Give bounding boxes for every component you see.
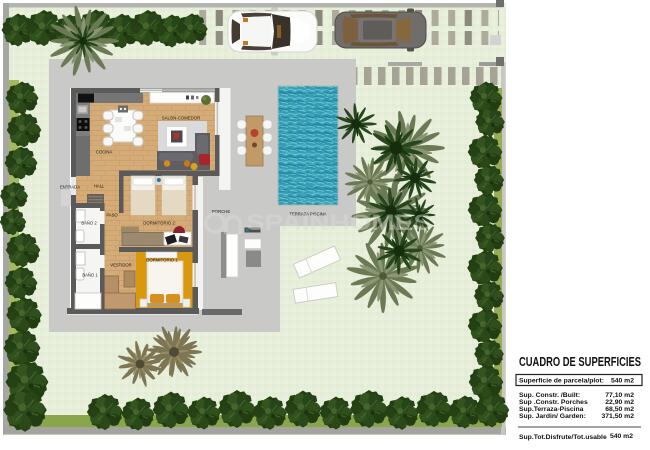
svg-text:VESTIDOR: VESTIDOR [110,263,131,268]
svg-text:540 m2: 540 m2 [610,433,633,440]
svg-text:Sup. Jardin/ Garden:: Sup. Jardin/ Garden: [519,413,586,420]
svg-text:Sup.Tot.Disfrute/Tot.usable: Sup.Tot.Disfrute/Tot.usable [519,434,607,441]
svg-text:HALL: HALL [94,184,105,189]
svg-text:ENTRADA: ENTRADA [60,185,80,190]
svg-text:371,50 m2: 371,50 m2 [601,413,634,420]
svg-text:SALON-COMEDOR: SALON-COMEDOR [162,116,200,121]
svg-text:DORMITORIO 1: DORMITORIO 1 [146,258,178,263]
svg-text:COCINA: COCINA [96,150,113,155]
svg-text:PASO: PASO [106,213,118,218]
svg-text:540 m2: 540 m2 [611,378,634,385]
svg-text:Sup. Constr. /Built:: Sup. Constr. /Built: [519,392,580,399]
svg-text:Sup .Constr. Porches: Sup .Constr. Porches [519,399,588,406]
svg-text:Superficie de parcela/plot:: Superficie de parcela/plot: [519,378,604,385]
svg-text:SPAINHOMES: SPAINHOMES [246,210,432,235]
svg-text:22,90 m2: 22,90 m2 [605,399,634,406]
svg-text:68,50 m2: 68,50 m2 [605,406,634,413]
svg-text:77,10 m2: 77,10 m2 [605,392,634,399]
svg-text:BAÑO 1: BAÑO 1 [82,273,98,278]
svg-text:CUADRO DE SUPERFICIES: CUADRO DE SUPERFICIES [519,355,641,369]
svg-text:DORMITORIO 2: DORMITORIO 2 [143,221,175,226]
svg-text:BAÑO 2: BAÑO 2 [81,221,97,226]
svg-text:Sup.Terraza-Piscina: Sup.Terraza-Piscina [519,406,584,413]
